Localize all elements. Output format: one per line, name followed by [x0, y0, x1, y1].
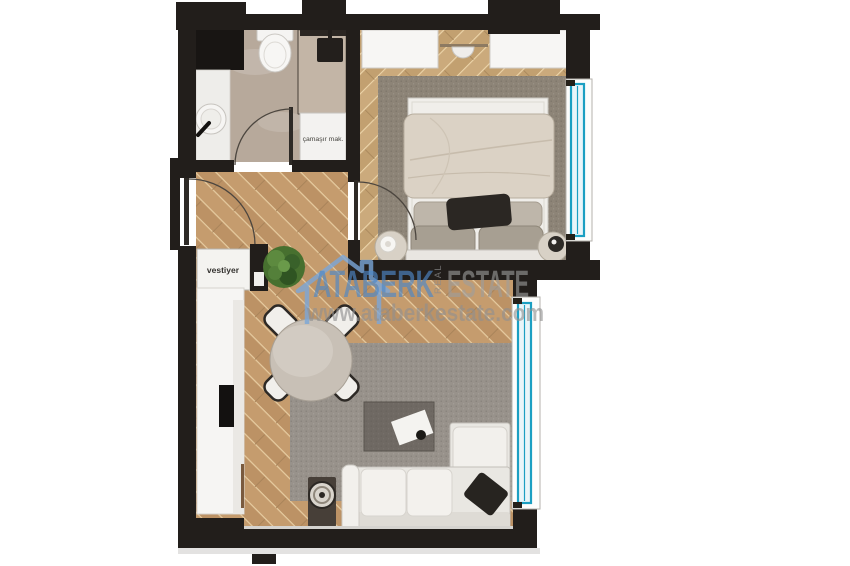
wardrobe-left [362, 30, 438, 68]
floor-plan: çamaşır mak. vestiyer [0, 0, 850, 566]
sink [196, 104, 226, 135]
toilet [257, 28, 293, 72]
wall-segment [292, 160, 360, 172]
shower-head [317, 38, 343, 62]
decor-tray-center [319, 492, 325, 498]
sofa-armrest [342, 465, 359, 533]
wall-segment [488, 0, 560, 34]
wall-segment [346, 14, 360, 172]
door-leaf [354, 180, 358, 240]
table-highlight [273, 325, 333, 377]
nightstand-left [375, 231, 407, 263]
accent-pillow [446, 193, 513, 230]
window-sill-tab [513, 502, 522, 508]
living-room-window [512, 297, 540, 509]
wall-segment [196, 160, 234, 172]
watermark: ATABERK REAL ESTATE www.ataberkestate.co… [298, 257, 544, 327]
watermark-brand-vertical: REAL [433, 264, 444, 294]
seat-cushion [407, 469, 452, 516]
side-table [308, 477, 336, 527]
bathroom-vanity [196, 30, 244, 70]
bedroom-window [566, 79, 592, 241]
decor-object [416, 430, 426, 440]
vestiyer-label: vestiyer [207, 265, 240, 275]
threshold-line [244, 526, 513, 529]
laundry-label: çamaşır mak. [303, 136, 344, 143]
window-sill-tab [566, 234, 575, 240]
wardrobe-right [490, 30, 568, 68]
cabinet-inset [219, 385, 234, 427]
wall-segment [178, 528, 537, 548]
vestiyer-closet: vestiyer [197, 244, 268, 291]
seat-cushion [361, 469, 406, 516]
vestiyer-frame-panel [254, 272, 264, 286]
door-leaf [289, 107, 293, 165]
table-lamp [548, 236, 564, 252]
door-leaf [184, 177, 189, 245]
bed [404, 98, 554, 262]
coffee-table [364, 402, 434, 451]
duvet [404, 114, 554, 198]
wall-segment [302, 0, 346, 16]
lamp-top [552, 240, 557, 245]
wall-segment [178, 246, 196, 546]
wall-segment [170, 158, 180, 250]
watermark-website: www.ataberkestate.com [306, 300, 544, 327]
washing-machine: çamaşır mak. [300, 113, 346, 162]
floor-plan-image: çamaşır mak. vestiyer [0, 0, 850, 566]
plant [263, 246, 305, 288]
lamp-top [385, 241, 391, 247]
nightstand-right [538, 232, 568, 262]
cabinet-handle [241, 464, 244, 508]
wall-shadow [178, 548, 540, 554]
window-sill-tab [566, 80, 575, 86]
kitchen-cabinet [197, 288, 244, 514]
wall-segment [178, 14, 196, 178]
shower-rail [300, 30, 346, 36]
